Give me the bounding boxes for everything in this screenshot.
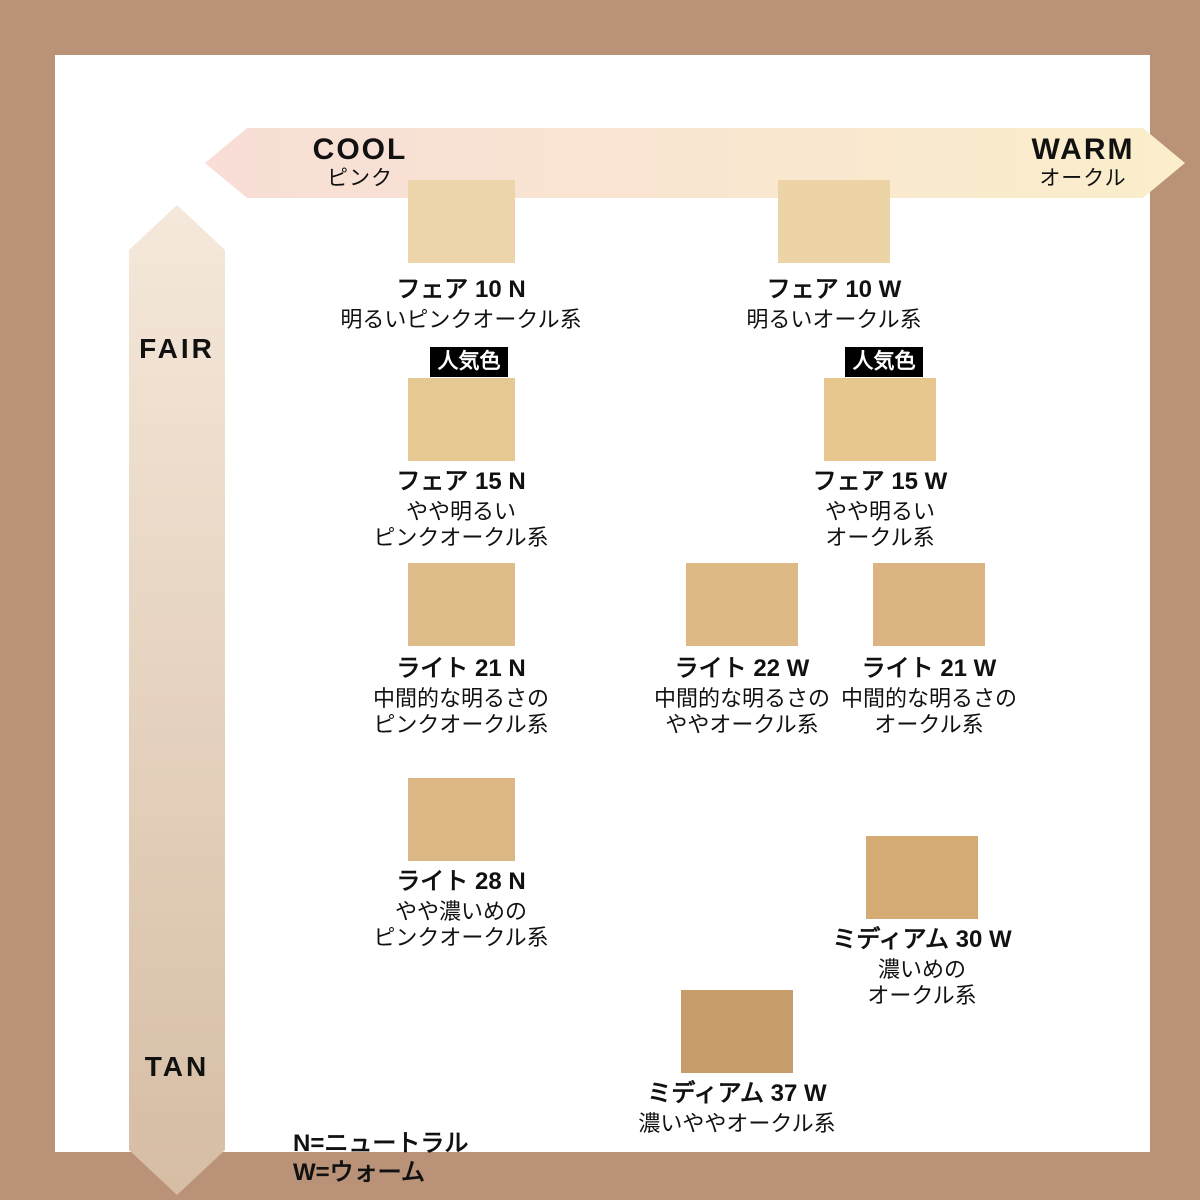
fair-tan-gradient-arrow: FAIR TAN: [129, 205, 225, 1195]
swatch-light-22w: [686, 563, 798, 646]
shade-name: ミディアム 30 W: [752, 926, 1092, 954]
swatch-light-28n: [408, 778, 515, 861]
legend: N=ニュートラル W=ウォーム: [293, 1129, 468, 1187]
shade-label-medium-37w: ミディアム 37 W 濃いややオークル系: [567, 1080, 907, 1137]
shade-description-line: オークル系: [710, 525, 1050, 551]
cool-warm-gradient-arrow: COOL ピンク WARM オークル: [205, 128, 1185, 198]
shade-description-line: オークル系: [752, 983, 1092, 1009]
shade-description-line: やや明るい: [710, 499, 1050, 525]
shade-label-fair-15n: フェア 15 N やや明るい ピンクオークル系: [291, 468, 631, 551]
shade-description-line: やや濃いめの: [291, 899, 631, 925]
shade-name: フェア 10 N: [291, 276, 631, 304]
shade-description-line: ピンクオークル系: [291, 925, 631, 951]
warm-label: WARM: [973, 133, 1193, 167]
shade-description-line: 明るいピンクオークル系: [291, 307, 631, 333]
shade-name: ライト 28 N: [291, 868, 631, 896]
shade-label-light-21w: ライト 21 W 中間的な明るさの オークル系: [759, 655, 1099, 738]
shade-label-fair-10n: フェア 10 N 明るいピンクオークル系: [291, 276, 631, 333]
chart-panel: COOL ピンク WARM オークル FAIR TAN 人気色 人気色: [55, 55, 1150, 1152]
swatch-fair-15n: [408, 378, 515, 461]
warm-axis-label: WARM オークル: [973, 133, 1193, 191]
swatch-light-21n: [408, 563, 515, 646]
legend-line-n: N=ニュートラル: [293, 1129, 468, 1158]
cool-label: COOL: [250, 133, 470, 167]
shade-label-medium-30w: ミディアム 30 W 濃いめの オークル系: [752, 926, 1092, 1009]
warm-sublabel: オークル: [973, 167, 1193, 191]
popular-badge-fair-15n: 人気色: [430, 347, 508, 377]
shade-description-line: ピンクオークル系: [291, 525, 631, 551]
shade-label-light-28n: ライト 28 N やや濃いめの ピンクオークル系: [291, 868, 631, 951]
swatch-light-21w: [873, 563, 985, 646]
shade-name: フェア 15 N: [291, 468, 631, 496]
shade-name: フェア 10 W: [664, 276, 1004, 304]
swatch-fair-10w: [778, 180, 890, 263]
legend-line-w: W=ウォーム: [293, 1158, 468, 1187]
shade-name: ライト 21 W: [759, 655, 1099, 683]
shade-description-line: 明るいオークル系: [664, 307, 1004, 333]
shade-name: フェア 15 W: [710, 468, 1050, 496]
shade-name: ミディアム 37 W: [567, 1080, 907, 1108]
fair-label: FAIR: [129, 333, 225, 365]
shade-description-line: やや明るい: [291, 499, 631, 525]
shade-description-line: オークル系: [759, 712, 1099, 738]
swatch-fair-15w: [824, 378, 936, 461]
shade-label-fair-10w: フェア 10 W 明るいオークル系: [664, 276, 1004, 333]
shade-description-line: 中間的な明るさの: [759, 686, 1099, 712]
shade-label-fair-15w: フェア 15 W やや明るい オークル系: [710, 468, 1050, 551]
shade-description-line: 濃いめの: [752, 957, 1092, 983]
swatch-fair-10n: [408, 180, 515, 263]
swatch-medium-30w: [866, 836, 978, 919]
popular-badge-fair-15w: 人気色: [845, 347, 923, 377]
foundation-shade-chart: COOL ピンク WARM オークル FAIR TAN 人気色 人気色: [0, 0, 1200, 1200]
tan-label: TAN: [129, 1051, 225, 1083]
shade-description-line: 濃いややオークル系: [567, 1111, 907, 1137]
